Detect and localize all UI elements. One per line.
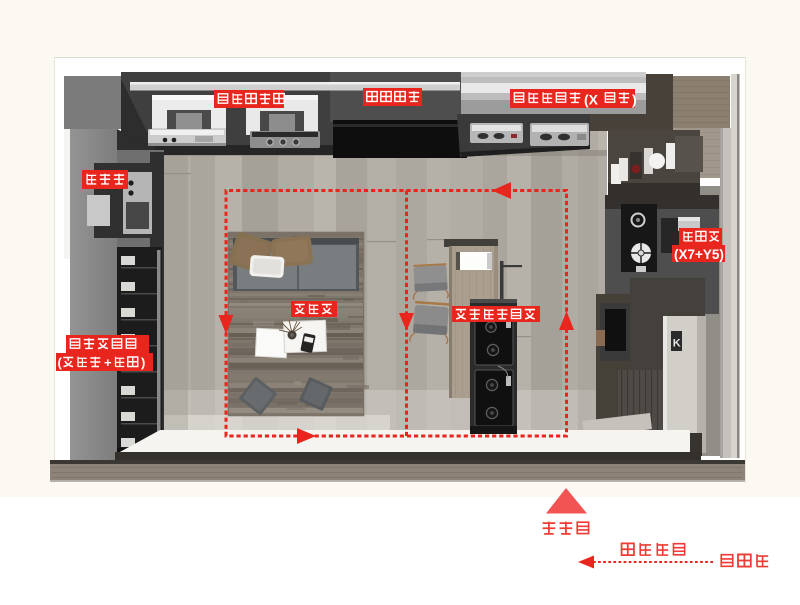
svg-text:(X: (X xyxy=(584,92,599,108)
svg-text:(X7+Y5): (X7+Y5) xyxy=(674,247,724,262)
svg-text:K: K xyxy=(673,338,681,350)
svg-text:+: + xyxy=(104,355,112,370)
svg-text:): ) xyxy=(632,92,637,108)
svg-text:): ) xyxy=(141,355,145,370)
svg-text:(: ( xyxy=(58,355,63,370)
